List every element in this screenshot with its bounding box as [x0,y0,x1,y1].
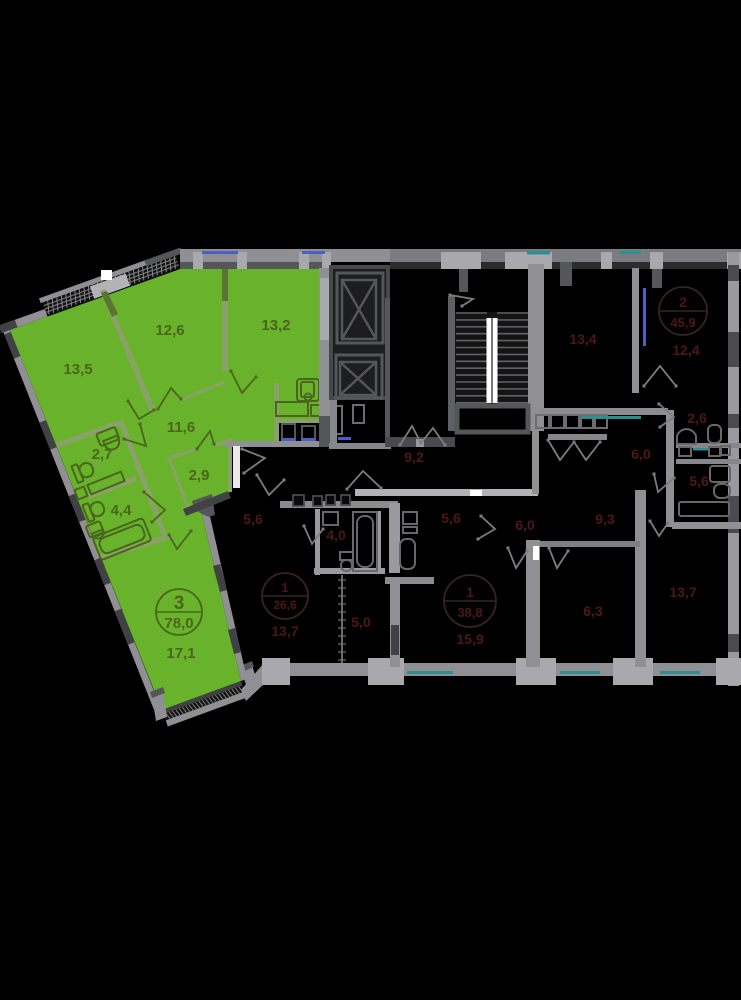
svg-text:78,0: 78,0 [164,615,193,632]
svg-text:5,6: 5,6 [243,511,263,527]
svg-text:3: 3 [174,593,185,614]
svg-text:6,0: 6,0 [515,517,535,533]
svg-text:38,8: 38,8 [457,605,482,620]
svg-text:1: 1 [466,584,474,600]
svg-text:9,3: 9,3 [595,511,615,527]
svg-text:5,0: 5,0 [351,614,371,630]
svg-text:6,3: 6,3 [583,603,603,619]
svg-text:12,6: 12,6 [155,322,184,339]
svg-text:13,4: 13,4 [569,331,596,347]
svg-text:5,6: 5,6 [441,510,461,526]
svg-text:13,2: 13,2 [261,317,290,334]
svg-text:26,6: 26,6 [273,598,297,612]
svg-text:15,9: 15,9 [456,631,483,647]
svg-text:11,6: 11,6 [167,419,195,436]
svg-text:13,5: 13,5 [63,361,92,378]
svg-text:6,0: 6,0 [631,446,651,462]
svg-text:4,4: 4,4 [111,502,133,519]
svg-text:2,9: 2,9 [189,467,210,484]
svg-text:45,9: 45,9 [670,315,695,330]
svg-text:2,7: 2,7 [92,446,113,463]
svg-text:5,6: 5,6 [689,473,709,489]
svg-text:13,7: 13,7 [669,584,696,600]
svg-text:17,1: 17,1 [166,645,195,662]
svg-text:13,7: 13,7 [271,623,298,639]
svg-text:2: 2 [679,294,687,310]
svg-text:1: 1 [281,580,288,595]
svg-text:4,0: 4,0 [326,527,346,543]
svg-text:9,2: 9,2 [404,449,424,465]
svg-text:12,4: 12,4 [672,342,699,358]
svg-text:2,6: 2,6 [687,410,707,426]
